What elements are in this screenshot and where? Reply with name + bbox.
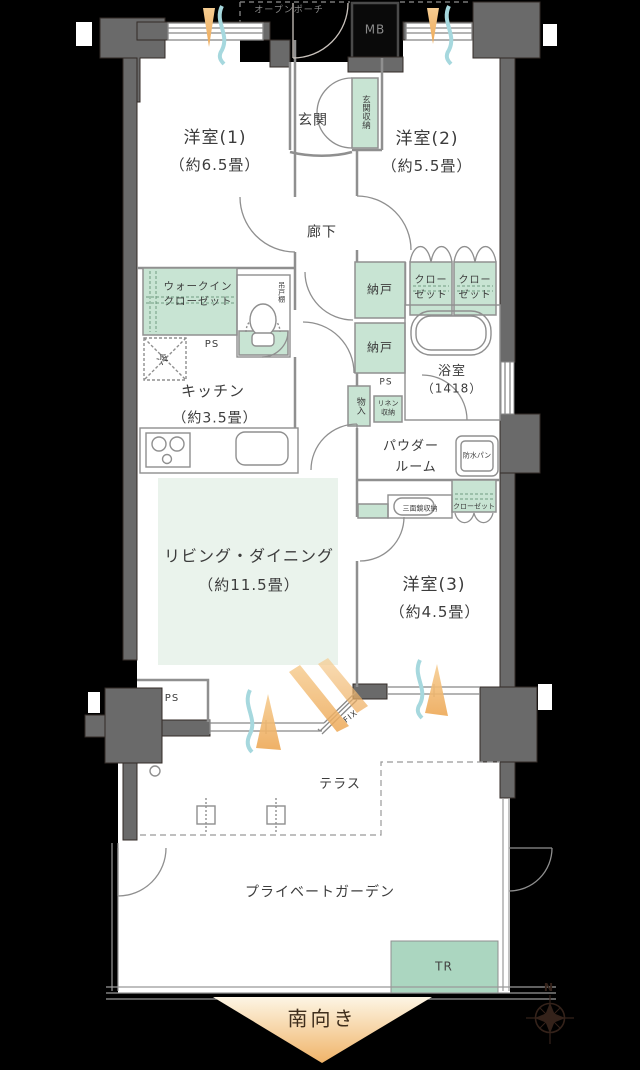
bedroom1-size: （約6.5畳） xyxy=(170,158,261,174)
closet-left-label-2: ゼット xyxy=(415,291,448,302)
entrance-label: 玄関 xyxy=(298,114,328,129)
closet-right-label-1: クロー xyxy=(459,276,492,287)
storeroom-upper-label: 納戸 xyxy=(367,284,393,297)
linen-label-1: リネン xyxy=(378,400,399,407)
kitchen-size: （約3.5畳） xyxy=(172,412,257,427)
small-storage-label: 物入 xyxy=(354,397,363,415)
south-facing-label: 南向き xyxy=(288,1009,357,1030)
bedroom1-name: 洋室(1) xyxy=(183,130,246,148)
kitchen-name: キッチン xyxy=(181,384,245,400)
terrace-label: テラス xyxy=(319,778,361,792)
meter-box-label: MB xyxy=(365,24,386,37)
entrance-storage-label: 玄関収納 xyxy=(361,95,370,129)
bedroom2-name: 洋室(2) xyxy=(395,131,458,149)
powder-room-label-2: ルーム xyxy=(395,461,437,475)
bathroom-size: （1418） xyxy=(422,383,483,396)
hanging-cupboard-label: 吊戸棚 xyxy=(277,282,284,303)
compass-icon xyxy=(526,995,574,1044)
closet-left-label-1: クロー xyxy=(415,276,448,287)
bedroom3-name: 洋室(3) xyxy=(402,577,465,595)
bedroom3-closet-label: クローゼット xyxy=(453,503,495,510)
private-garden-label: プライベートガーデン xyxy=(245,886,395,901)
open-porch-label: オープンポーチ xyxy=(254,6,323,15)
linen-label-2: 収納 xyxy=(381,409,395,416)
floorplan-linework xyxy=(0,0,640,1070)
storeroom-lower-label: 納戸 xyxy=(367,342,393,355)
living-dining-name: リビング・ダイニング xyxy=(164,549,334,566)
living-dining-size: （約11.5畳） xyxy=(198,578,299,594)
closet-right-label-2: ゼット xyxy=(459,291,492,302)
wic-label-2: クローゼット xyxy=(164,296,233,307)
bedroom2-size: （約5.5畳） xyxy=(382,159,473,175)
living-dining-area xyxy=(158,478,338,665)
bathroom-name: 浴室 xyxy=(438,365,466,379)
ps-label-bottom: PS xyxy=(165,694,179,705)
ps-label-linen: PS xyxy=(379,378,392,387)
floorplan-canvas: オープンポーチ MB 洋室(1) （約6.5畳） 洋室(2) （約5.5畳） 玄… xyxy=(0,0,640,1070)
bedroom3-size: （約4.5畳） xyxy=(390,605,481,621)
waterproof-pan-label: 防水パン xyxy=(463,452,491,459)
powder-room-label-1: パウダー xyxy=(383,440,439,454)
wic-label-1: ウォークイン xyxy=(164,281,233,292)
hallway-label: 廊下 xyxy=(307,226,337,241)
compass-north-label: N xyxy=(544,982,554,994)
mirror-cabinet-label: 三面鏡収納 xyxy=(403,505,438,512)
ps-label-wic: PS xyxy=(205,340,219,351)
trunk-room-label: TR xyxy=(435,961,453,974)
